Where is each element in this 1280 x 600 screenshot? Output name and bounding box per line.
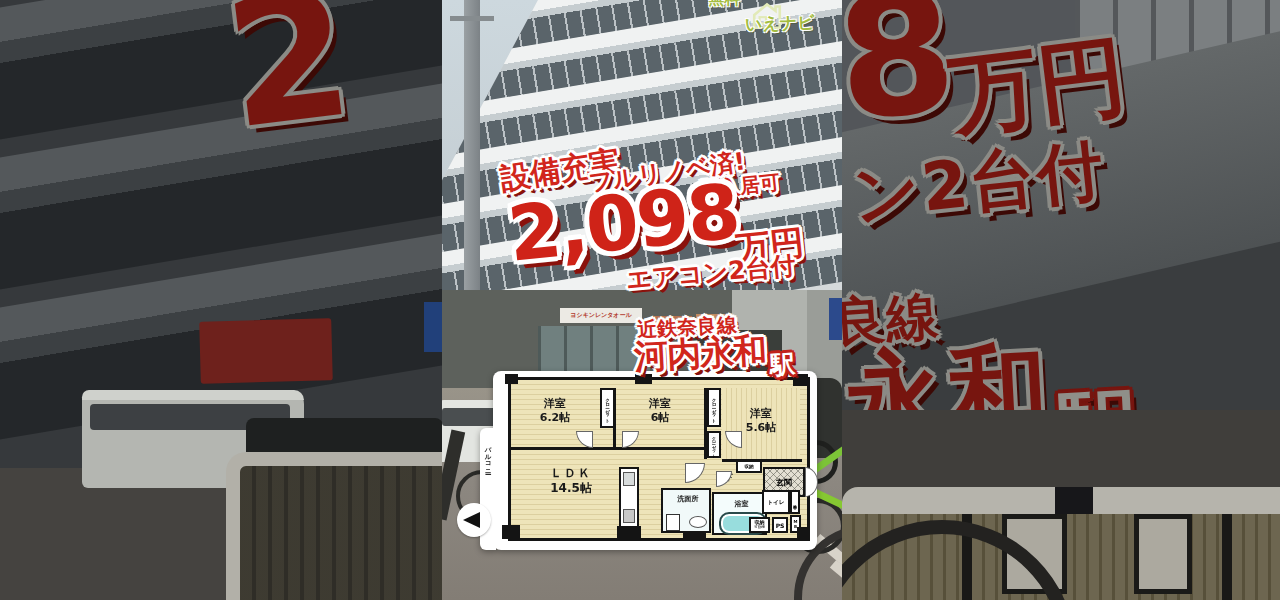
closet: クローゼット xyxy=(707,388,721,427)
video-frame: 2 8 万円 ン2台付 良線 永和 駅 xyxy=(0,0,1280,600)
ldk-size: 14.5帖 xyxy=(550,481,592,495)
echo-wall xyxy=(1222,514,1232,600)
echo-floorplan-pillar xyxy=(1055,487,1093,514)
echo-blue-sign xyxy=(424,302,442,352)
toilet: トイレ xyxy=(762,490,790,514)
shop-sign: ヨシキンレンタオール xyxy=(560,308,642,323)
station-suffix: 駅 xyxy=(769,351,795,377)
floorplan: バルコニー 洋室 6.2帖 洋室 6帖 洋室 5.6帖 xyxy=(480,371,820,550)
bedroom2-type: 洋室 xyxy=(649,397,671,410)
closet: クローゼット xyxy=(707,431,721,458)
kitchen-sink xyxy=(623,472,635,486)
utility-pole xyxy=(464,0,480,300)
wall-pillar xyxy=(505,374,518,384)
closet: クローゼット xyxy=(600,388,615,428)
interior-wall xyxy=(722,459,802,462)
bedroom2-label: 洋室 6帖 xyxy=(616,397,704,425)
video-center: ヨシキンレンタオール 無料 いえナビ xyxy=(442,0,842,600)
echo-closet-box xyxy=(1134,514,1192,594)
van-roof xyxy=(82,390,304,400)
ldk-label: ＬＤＫ 14.5帖 xyxy=(511,466,631,496)
washroom: 洗面所 xyxy=(661,488,711,533)
closet-label: クローゼット xyxy=(605,395,610,421)
washbasin-icon xyxy=(689,516,707,528)
logo-brand: いえナビ xyxy=(745,14,815,33)
utility-pole-arm xyxy=(450,16,494,21)
direction-arrow-icon xyxy=(463,512,480,528)
pipe-space: PS xyxy=(772,517,788,533)
echo-price-digit-right: 8 xyxy=(842,0,962,145)
entrance-storage-label: 収納 xyxy=(745,464,754,469)
wall-pillar xyxy=(502,525,520,539)
storage-shelf-label: 可動棚 xyxy=(754,526,765,530)
toilet-label: トイレ xyxy=(768,499,785,506)
bedroom1-label: 洋室 6.2帖 xyxy=(511,397,599,425)
closet-label: クローゼット xyxy=(712,395,717,421)
background-right-panel: 8 万円 ン2台付 良線 永和 駅 xyxy=(842,0,1280,600)
entrance-label: 玄関 xyxy=(776,477,792,488)
echo-price-digit-left: 2 xyxy=(218,0,360,154)
balcony-label: バルコニー xyxy=(484,442,492,472)
kitchen-stove xyxy=(623,509,635,523)
echo-floorplan-corner xyxy=(226,452,442,600)
logo-free-label: 無料 xyxy=(708,0,740,7)
bedroom3-type: 洋室 xyxy=(750,407,772,420)
station-name: 河内永和 xyxy=(633,333,767,374)
direction-marker xyxy=(457,503,491,537)
echo-price-unit: 万円 xyxy=(945,32,1130,141)
washing-machine-icon xyxy=(666,514,680,531)
washstand: 洗面台 xyxy=(790,490,800,514)
ldk-type: ＬＤＫ xyxy=(550,466,592,480)
entrance-storage: 収納 xyxy=(736,460,762,473)
blue-sign xyxy=(829,298,842,340)
wall-pillar xyxy=(683,531,706,541)
shop-sign-text: ヨシキンレンタオール xyxy=(570,311,631,320)
bedroom1-type: 洋室 xyxy=(544,397,566,410)
echo-red-banner xyxy=(199,318,333,383)
bedroom1-size: 6.2帖 xyxy=(540,411,571,424)
washroom-label: 洗面所 xyxy=(663,495,713,504)
kitchen-counter xyxy=(619,467,639,528)
interior-wall xyxy=(511,447,706,450)
closet-label: クローゼット xyxy=(712,433,717,456)
bedroom2-size: 6帖 xyxy=(651,411,670,424)
bedroom3-size: 5.6帖 xyxy=(746,421,777,434)
storage: 収納 可動棚 xyxy=(749,517,770,533)
bathroom-label: 浴室 xyxy=(714,500,769,509)
wall-pillar xyxy=(617,526,641,539)
ps-label: PS xyxy=(776,522,785,529)
background-left-panel: 2 xyxy=(0,0,442,600)
wall-pillar xyxy=(797,527,809,539)
